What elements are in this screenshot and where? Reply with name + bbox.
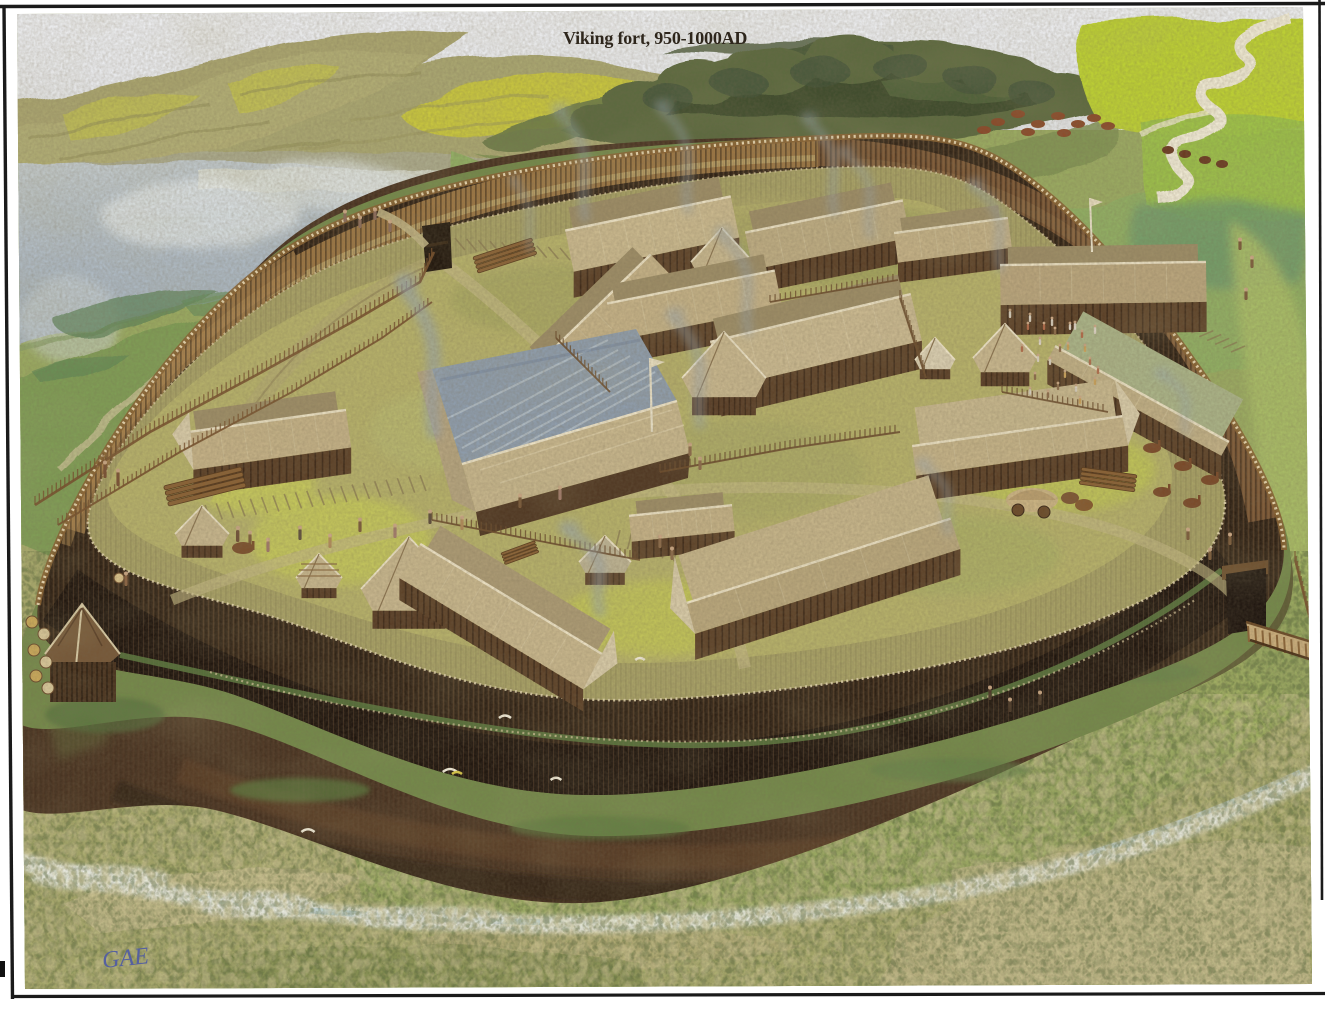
svg-text:GAE: GAE bbox=[101, 943, 150, 974]
svg-text:Viking fort, 950-1000AD: Viking fort, 950-1000AD bbox=[563, 28, 747, 48]
